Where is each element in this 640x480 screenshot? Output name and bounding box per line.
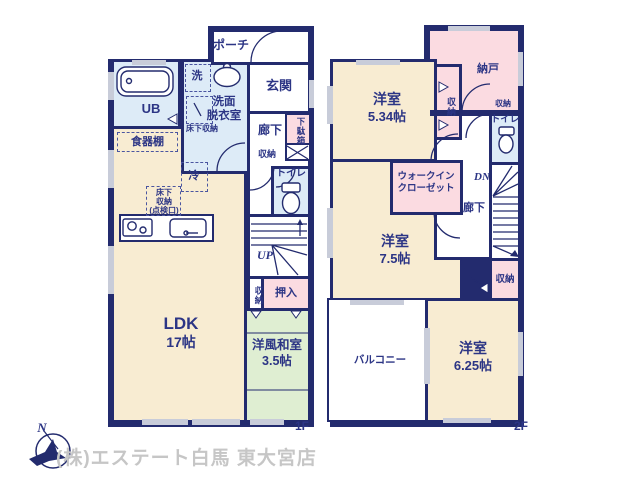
window-mark <box>192 419 240 425</box>
window-mark <box>250 419 284 425</box>
label-nando: 納戸 <box>468 63 508 76</box>
label-toilet-1f: トイレ <box>272 168 310 180</box>
label-bedroom1: 洋室 5.34帖 <box>351 91 423 125</box>
label-ldk: LDK 17帖 <box>141 314 221 351</box>
label-wic-line2: クローゼット <box>390 183 462 195</box>
window-mark <box>327 86 333 124</box>
label-closet2: 収納 <box>488 275 522 286</box>
label-toilet-2f: トイレ <box>489 115 521 126</box>
window-mark <box>443 418 491 423</box>
label-fridge: 冷 <box>185 170 203 183</box>
label-bedroom2: 洋室 7.5帖 <box>359 233 431 267</box>
label-cupboard: 食器棚 <box>117 136 178 149</box>
label-bedroom3: 洋室 6.25帖 <box>436 340 510 374</box>
window-mark <box>518 332 523 376</box>
label-shelf-storage: 収納 <box>486 99 520 108</box>
label-bedroom3-name: 洋室 <box>436 340 510 358</box>
label-bedroom1-size: 5.34帖 <box>351 109 423 125</box>
label-hallway-1f: 廊下 <box>251 124 289 138</box>
label-porch: ポーチ <box>204 39 258 53</box>
window-mark <box>448 26 490 31</box>
label-underfloor-line1: 床下 <box>145 188 183 197</box>
label-wic: ウォークイン クローゼット <box>390 171 462 194</box>
label-washitsu-name: 洋風和室 <box>247 338 307 354</box>
window-mark <box>327 208 333 258</box>
label-dn: DN <box>468 171 496 184</box>
label-underfloor-line2: 収納 <box>145 197 183 206</box>
room-ub <box>111 59 181 129</box>
label-balcony: バルコニー <box>350 354 410 366</box>
label-wic-line1: ウォークイン <box>390 171 462 183</box>
label-washitsu: 洋風和室 3.5帖 <box>247 338 307 369</box>
label-underfloor-kitchen: 床下 収納 (点検口) <box>145 188 183 215</box>
label-bedroom1-name: 洋室 <box>351 91 423 109</box>
label-stair-storage: 収納 <box>250 280 263 310</box>
label-hallway-2f: 廊下 <box>455 202 493 215</box>
window-mark <box>108 72 114 100</box>
label-washroom-line1: 洗面 <box>198 96 250 110</box>
label-bedroom2-size: 7.5帖 <box>359 251 431 267</box>
label-washroom: 洗面 脱衣室 <box>198 96 250 123</box>
label-washer: 洗 <box>188 70 206 83</box>
window-mark <box>108 246 114 294</box>
label-entrance: 玄関 <box>254 79 304 94</box>
label-ldk-size: 17帖 <box>141 334 221 351</box>
compass-north-label: N <box>32 421 52 436</box>
label-oshiire: 押入 <box>263 287 309 300</box>
stairs-1f <box>247 214 311 279</box>
label-underfloor-line3: (点検口) <box>145 206 183 215</box>
label-bedroom2-name: 洋室 <box>359 233 431 251</box>
label-up: UP <box>250 249 280 263</box>
label-closet1: 収納 <box>442 90 456 124</box>
label-washitsu-size: 3.5帖 <box>247 354 307 370</box>
kitchen-counter <box>119 214 214 242</box>
label-washroom-line2: 脱衣室 <box>198 110 250 124</box>
window-mark <box>142 419 188 425</box>
window-mark <box>356 60 400 65</box>
label-bedroom3-size: 6.25帖 <box>436 358 510 374</box>
label-floor-tag-2f: 2F <box>506 420 536 434</box>
window-mark <box>309 80 314 108</box>
window-mark <box>350 300 404 305</box>
window-mark <box>132 60 166 65</box>
label-ub: UB <box>131 102 171 117</box>
label-floor-tag-1f: 1F <box>288 420 316 434</box>
floorplan-canvas: ポーチ 玄関 洗 洗面 脱衣室 床下収納 UB 食器棚 冷 床下 収納 (点検口… <box>0 0 640 480</box>
company-name: (株)エステート白馬 東大宮店 <box>56 443 317 470</box>
label-hall-storage: 収納 <box>252 149 282 159</box>
window-mark <box>518 52 523 86</box>
window-mark <box>108 150 114 188</box>
label-ldk-name: LDK <box>141 314 221 334</box>
label-underfloor-washroom: 床下収納 <box>180 124 224 133</box>
label-shoe-cabinet: 下駄箱 <box>291 116 305 146</box>
window-mark <box>424 328 430 384</box>
linework-overlay <box>0 0 640 480</box>
